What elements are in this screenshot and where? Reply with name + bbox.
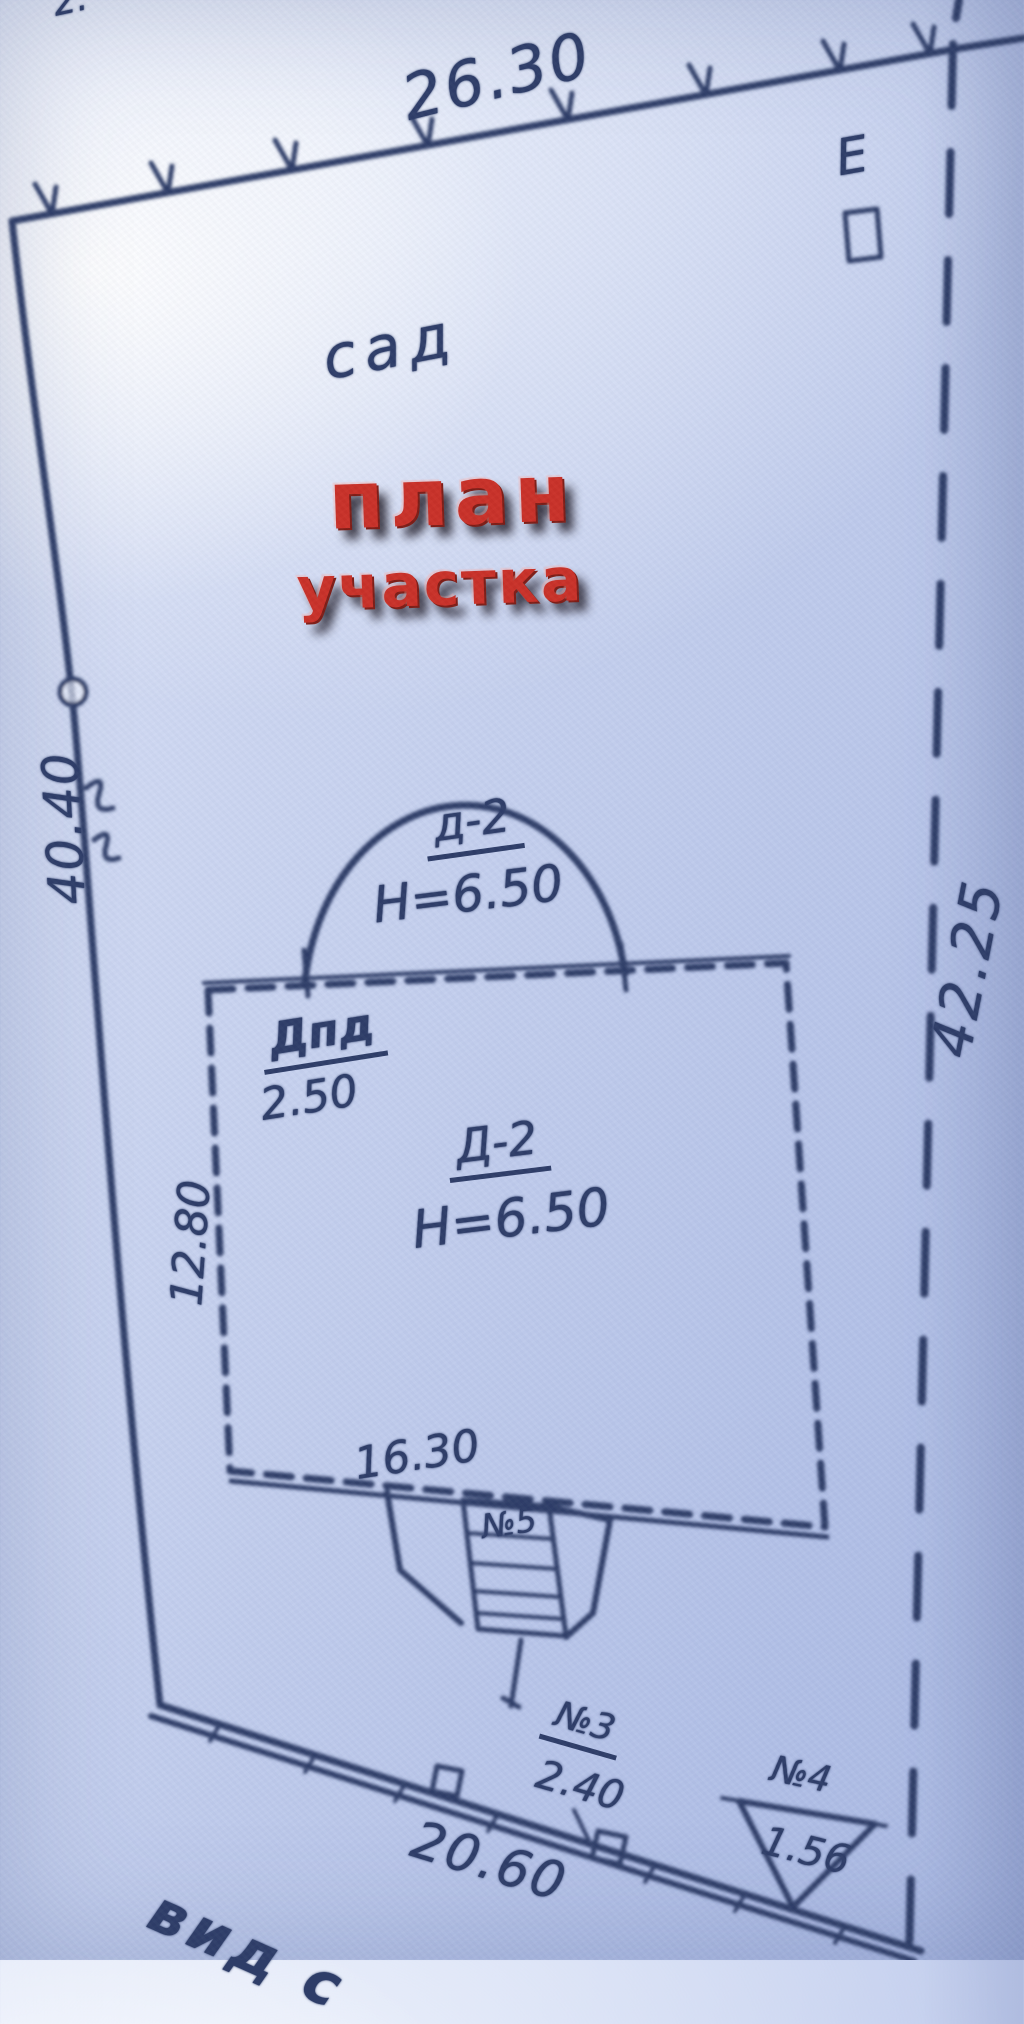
left-boundary-line <box>12 221 160 1705</box>
survey-point-marker <box>60 679 86 705</box>
linework-layer <box>0 0 1024 1960</box>
photographed-site-plan: { "overlay": { "title_line1": "план", "t… <box>0 0 1024 1960</box>
overlay-title-line1: план <box>327 446 577 548</box>
overlay-title-line2: участка <box>296 545 585 625</box>
porch-stair-steps <box>467 1533 563 1619</box>
boundary-post-square-a <box>432 1766 462 1796</box>
porch-pointer-line <box>503 1640 521 1707</box>
porch-code: №5 <box>479 1500 539 1546</box>
corner-mark-square <box>845 209 881 261</box>
dim-left-boundary: 40.40 <box>31 750 97 906</box>
house-code: Д-2 <box>443 1109 552 1183</box>
porch-left-wall <box>387 1492 461 1623</box>
house-depth: 12.80 <box>161 1178 221 1307</box>
right-boundary-dash-top <box>956 0 959 18</box>
